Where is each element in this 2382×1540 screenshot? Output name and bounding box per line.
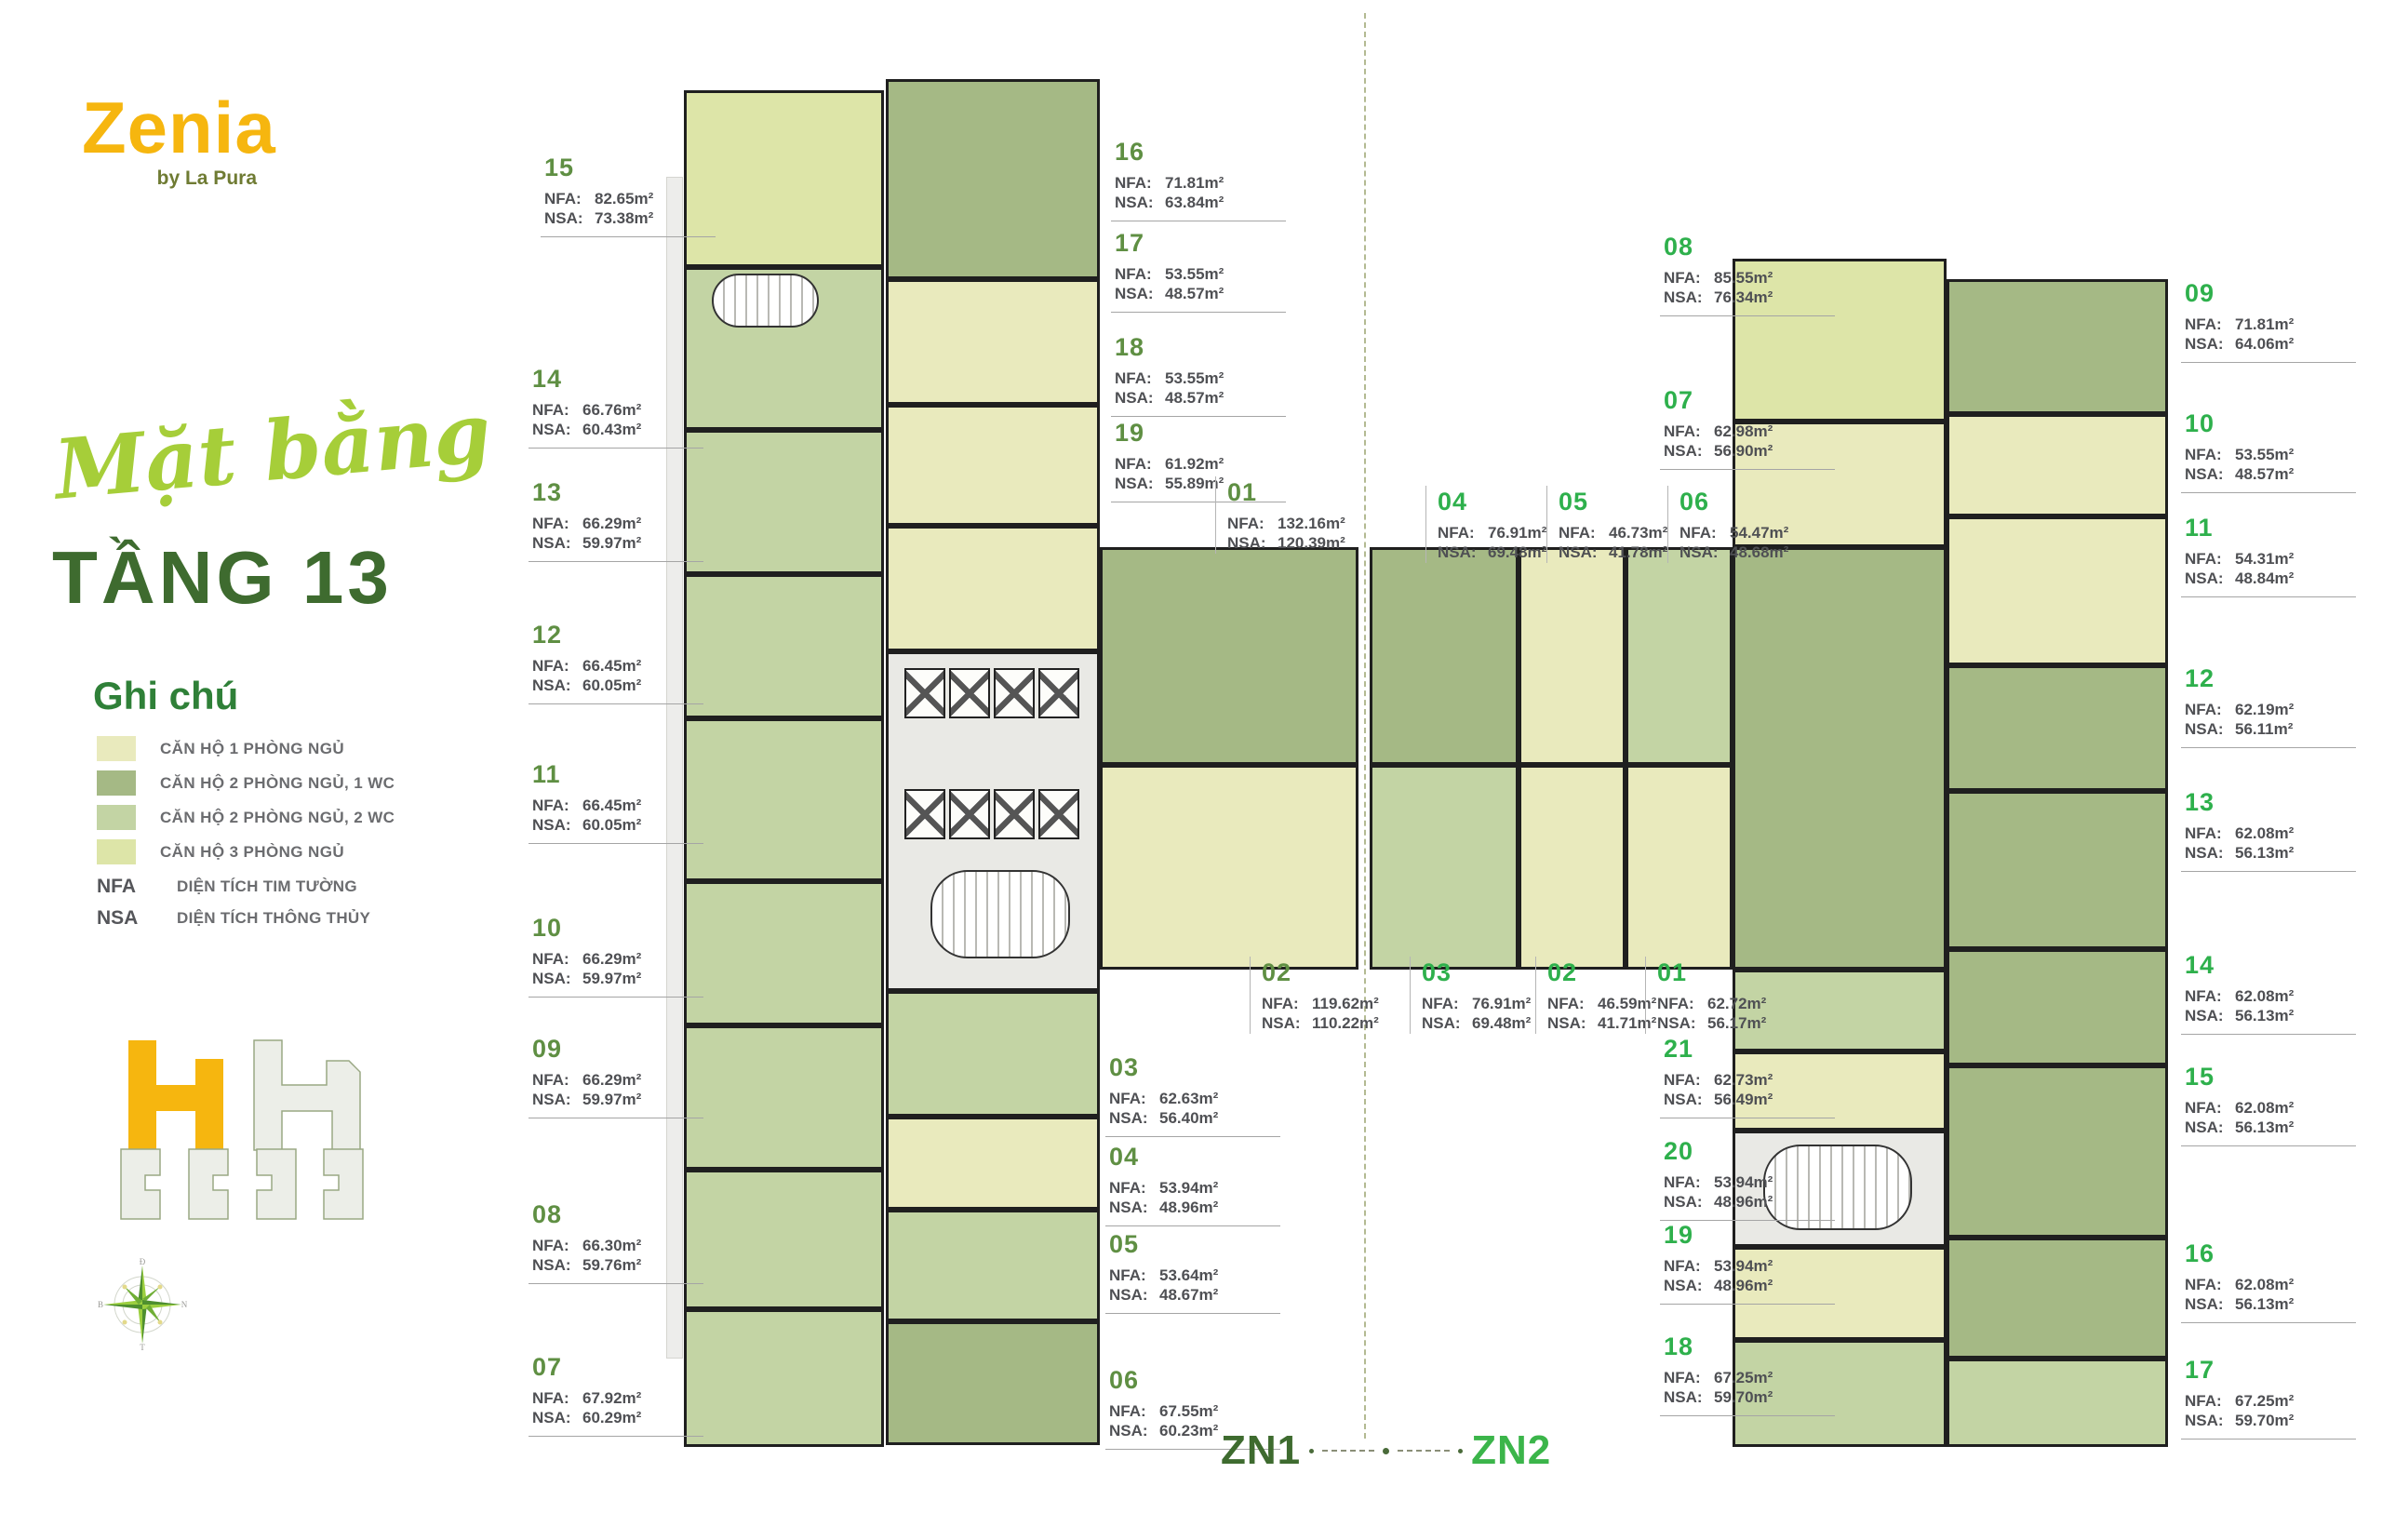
unit-number: 21 — [1664, 1033, 1840, 1065]
unit-nfa-key: NFA: — [1115, 173, 1165, 194]
unit-nfa-value: 54.31m² — [2235, 549, 2294, 569]
unit-nfa-row: NFA:53.55m² — [1115, 368, 1291, 389]
zn1-unit-02 — [1100, 765, 1358, 970]
unit-label-zn2-13: 13NFA:62.08m²NSA:56.13m² — [2185, 786, 2362, 864]
unit-nfa-key: NFA: — [1664, 422, 1714, 442]
unit-nsa-key: NSA: — [1109, 1285, 1159, 1306]
elevator-8 — [1038, 789, 1079, 839]
unit-nsa-value: 41.78m² — [1609, 542, 1667, 563]
unit-nsa-value: 60.23m² — [1159, 1421, 1218, 1441]
unit-nsa-key: NSA: — [2185, 1411, 2235, 1431]
unit-nsa-row: NSA:56.13m² — [2185, 1118, 2362, 1138]
unit-label-zn2-06: 06NFA:54.47m²NSA:48.68m² — [1667, 486, 1856, 563]
unit-nfa-value: 66.76m² — [582, 400, 641, 421]
unit-nsa-row: NSA:59.97m² — [532, 1090, 709, 1110]
unit-nfa-value: 82.65m² — [595, 189, 653, 209]
unit-nfa-value: 67.92m² — [582, 1388, 641, 1409]
unit-nsa-value: 48.67m² — [1159, 1285, 1218, 1306]
unit-label-zn1-16: 16NFA:71.81m²NSA:63.84m² — [1115, 136, 1291, 213]
minimap-block-2 — [189, 1149, 228, 1219]
unit-nsa-row: NSA:56.13m² — [2185, 1006, 2362, 1026]
unit-number: 10 — [2185, 408, 2362, 440]
brand-logo: Zenia — [82, 86, 276, 170]
elevator-5 — [904, 789, 945, 839]
unit-nfa-value: 53.55m² — [1165, 264, 1224, 285]
zn1-unit-09 — [684, 1025, 884, 1170]
zn1-unit-17 — [886, 279, 1100, 405]
legend-title: Ghi chú — [93, 674, 238, 718]
unit-nsa-row: NSA:59.97m² — [532, 533, 709, 554]
unit-nfa-row: NFA:67.55m² — [1109, 1401, 1286, 1422]
unit-nfa-key: NFA: — [2185, 1391, 2235, 1412]
unit-nsa-value: 48.68m² — [1730, 542, 1788, 563]
unit-label-zn2-12: 12NFA:62.19m²NSA:56.11m² — [2185, 663, 2362, 740]
zn2-unit-15 — [1947, 1065, 2168, 1238]
unit-number: 17 — [2185, 1354, 2362, 1386]
unit-nfa-value: 66.30m² — [582, 1236, 641, 1256]
unit-nfa-key: NFA: — [2185, 1098, 2235, 1118]
unit-nfa-row: NFA:53.55m² — [2185, 445, 2362, 465]
unit-number: 13 — [532, 476, 709, 509]
unit-nsa-value: 48.96m² — [1714, 1192, 1773, 1212]
compass-letter-bottom: T — [140, 1343, 145, 1351]
zn2-unit-10 — [1947, 414, 2168, 516]
unit-label-zn2-20: 20NFA:53.94m²NSA:48.96m² — [1664, 1135, 1840, 1212]
unit-nfa-key: NFA: — [2185, 315, 2235, 335]
unit-nsa-row: NSA:48.57m² — [1115, 388, 1291, 408]
unit-label-zn2-16: 16NFA:62.08m²NSA:56.13m² — [2185, 1238, 2362, 1315]
unit-label-zn1-15: 15NFA:82.65m²NSA:73.38m² — [544, 152, 721, 229]
zone-arrow-dot-center — [1383, 1448, 1389, 1454]
unit-nsa-row: NSA:120.39m² — [1227, 533, 1404, 554]
unit-nsa-value: 56.49m² — [1714, 1090, 1773, 1110]
zn1-unit-12 — [684, 574, 884, 718]
legend-note-NFA: NFADIỆN TÍCH TIM TƯỜNG — [97, 871, 370, 903]
unit-nsa-key: NSA: — [1664, 1090, 1714, 1110]
minimap-building-other-h — [254, 1040, 360, 1150]
unit-nsa-key: NSA: — [532, 420, 582, 440]
unit-nsa-value: 120.39m² — [1278, 533, 1345, 554]
unit-nfa-value: 62.19m² — [2235, 700, 2294, 720]
unit-nsa-value: 56.13m² — [2235, 1294, 2294, 1315]
unit-label-zn1-11: 11NFA:66.45m²NSA:60.05m² — [532, 758, 709, 836]
unit-label-zn2-19: 19NFA:53.94m²NSA:48.96m² — [1664, 1219, 1840, 1296]
unit-nfa-row: NFA:53.94m² — [1109, 1178, 1286, 1199]
unit-number: 06 — [1109, 1364, 1286, 1397]
unit-nfa-row: NFA:71.81m² — [2185, 315, 2362, 335]
zn2-unit-14 — [1947, 949, 2168, 1065]
unit-nsa-key: NSA: — [532, 1090, 582, 1110]
unit-nsa-key: NSA: — [1664, 288, 1714, 308]
unit-label-zn1-12: 12NFA:66.45m²NSA:60.05m² — [532, 619, 709, 696]
unit-nfa-row: NFA:66.45m² — [532, 656, 709, 676]
unit-nfa-value: 53.94m² — [1714, 1256, 1773, 1277]
unit-number: 16 — [1115, 136, 1291, 168]
unit-label-zn2-01: 01NFA:62.72m²NSA:56.17m² — [1645, 957, 1834, 1034]
zn1-unit-13 — [684, 430, 884, 574]
unit-label-zn1-10: 10NFA:66.29m²NSA:59.97m² — [532, 912, 709, 989]
unit-nfa-key: NFA: — [1657, 994, 1707, 1014]
unit-nsa-row: NSA:56.13m² — [2185, 1294, 2362, 1315]
zn1-unit-03 — [886, 991, 1100, 1117]
unit-nsa-row: NSA:56.49m² — [1664, 1090, 1840, 1110]
unit-label-zn2-15: 15NFA:62.08m²NSA:56.13m² — [2185, 1061, 2362, 1138]
unit-nsa-key: NSA: — [1657, 1013, 1707, 1034]
zn2-unit-02 — [1519, 765, 1626, 970]
unit-nsa-key: NSA: — [2185, 843, 2235, 864]
unit-nsa-row: NSA:60.29m² — [532, 1408, 709, 1428]
unit-nsa-row: NSA:48.57m² — [2185, 464, 2362, 485]
unit-nfa-row: NFA:62.63m² — [1109, 1089, 1286, 1109]
zone-arrow-dot-right — [1458, 1449, 1463, 1453]
compass-star — [103, 1265, 181, 1344]
unit-nsa-key: NSA: — [1664, 1192, 1714, 1212]
unit-number: 08 — [1664, 231, 1840, 263]
unit-nfa-row: NFA:67.92m² — [532, 1388, 709, 1409]
unit-nfa-key: NFA: — [1438, 523, 1488, 543]
unit-nsa-row: NSA:56.13m² — [2185, 843, 2362, 864]
unit-number: 12 — [532, 619, 709, 651]
compass-letter-left: B — [98, 1300, 103, 1309]
unit-number: 15 — [544, 152, 721, 184]
unit-nsa-row: NSA:63.84m² — [1115, 193, 1291, 213]
elevator-4 — [1038, 668, 1079, 718]
unit-nsa-value: 60.05m² — [582, 676, 641, 696]
legend-note-key-NFA: NFA — [97, 876, 177, 898]
unit-nfa-value: 66.29m² — [582, 949, 641, 970]
unit-nsa-key: NSA: — [532, 533, 582, 554]
unit-nfa-row: NFA:54.31m² — [2185, 549, 2362, 569]
unit-number: 18 — [1664, 1331, 1840, 1363]
zn1-unit-05 — [886, 1210, 1100, 1321]
legend-swatch-0 — [97, 736, 136, 761]
unit-label-zn2-07: 07NFA:62.98m²NSA:56.90m² — [1664, 384, 1840, 462]
unit-label-zn2-10: 10NFA:53.55m²NSA:48.57m² — [2185, 408, 2362, 485]
unit-nsa-value: 56.17m² — [1707, 1013, 1766, 1034]
zn1-unit-16 — [886, 79, 1100, 279]
unit-nsa-value: 48.57m² — [1165, 388, 1224, 408]
unit-nsa-row: NSA:56.11m² — [2185, 719, 2362, 740]
site-minimap — [110, 1024, 389, 1238]
floorplan-canvas: Zenia by La Pura Mặt bằng TẦNG 13 Ghi ch… — [0, 0, 2382, 1540]
unit-nfa-row: NFA:61.92m² — [1115, 454, 1291, 475]
legend: CĂN HỘ 1 PHÒNG NGỦCĂN HỘ 2 PHÒNG NGỦ, 1 … — [97, 731, 395, 869]
zn2-mid-left — [1733, 547, 1947, 970]
unit-nfa-key: NFA: — [1679, 523, 1730, 543]
unit-nsa-key: NSA: — [1438, 542, 1488, 563]
zn2-unit-06 — [1626, 547, 1733, 765]
unit-nsa-key: NSA: — [1109, 1108, 1159, 1129]
unit-nfa-value: 66.45m² — [582, 656, 641, 676]
unit-nfa-key: NFA: — [1547, 994, 1598, 1014]
unit-nfa-value: 54.47m² — [1730, 523, 1788, 543]
unit-number: 15 — [2185, 1061, 2362, 1093]
minimap-block-1 — [121, 1149, 160, 1219]
minimap-building-current — [128, 1040, 223, 1152]
brand-logo-sub: by La Pura — [80, 167, 257, 190]
unit-number: 11 — [2185, 512, 2362, 544]
unit-nfa-row: NFA:82.65m² — [544, 189, 721, 209]
unit-nfa-key: NFA: — [2185, 824, 2235, 844]
unit-nsa-key: NSA: — [2185, 1118, 2235, 1138]
unit-label-zn2-17: 17NFA:67.25m²NSA:59.70m² — [2185, 1354, 2362, 1431]
unit-number: 12 — [2185, 663, 2362, 695]
unit-label-zn2-14: 14NFA:62.08m²NSA:56.13m² — [2185, 949, 2362, 1026]
unit-nsa-key: NSA: — [2185, 334, 2235, 355]
unit-nfa-row: NFA:85.55m² — [1664, 268, 1840, 288]
unit-nfa-key: NFA: — [2185, 700, 2235, 720]
unit-label-zn2-08: 08NFA:85.55m²NSA:76.34m² — [1664, 231, 1840, 308]
unit-nfa-value: 66.29m² — [582, 1070, 641, 1091]
unit-nsa-value: 48.96m² — [1714, 1276, 1773, 1296]
unit-nfa-key: NFA: — [1115, 454, 1165, 475]
zn2-unit-01 — [1626, 765, 1733, 970]
unit-number: 05 — [1109, 1228, 1286, 1261]
unit-nfa-row: NFA:53.55m² — [1115, 264, 1291, 285]
zn1-top-stair — [712, 274, 819, 328]
unit-nfa-value: 62.08m² — [2235, 1098, 2294, 1118]
legend-item-0: CĂN HỘ 1 PHÒNG NGỦ — [97, 731, 395, 766]
unit-nfa-row: NFA:66.45m² — [532, 796, 709, 816]
unit-nsa-row: NSA:56.90m² — [1664, 441, 1840, 462]
unit-nsa-key: NSA: — [1109, 1421, 1159, 1441]
unit-nsa-key: NSA: — [1559, 542, 1609, 563]
unit-nfa-value: 53.55m² — [2235, 445, 2294, 465]
unit-nfa-key: NFA: — [2185, 549, 2235, 569]
unit-nsa-value: 56.13m² — [2235, 1118, 2294, 1138]
unit-number: 16 — [2185, 1238, 2362, 1270]
unit-number: 08 — [532, 1199, 709, 1231]
unit-nfa-key: NFA: — [1422, 994, 1472, 1014]
unit-nfa-row: NFA:53.94m² — [1664, 1172, 1840, 1193]
unit-nfa-row: NFA:66.29m² — [532, 1070, 709, 1091]
legend-note-NSA: NSADIỆN TÍCH THÔNG THỦY — [97, 903, 370, 934]
unit-nfa-key: NFA: — [1262, 994, 1312, 1014]
zn1-unit-06 — [886, 1321, 1100, 1445]
unit-nfa-row: NFA:62.08m² — [2185, 1098, 2362, 1118]
unit-number: 20 — [1664, 1135, 1840, 1168]
unit-nfa-key: NFA: — [532, 656, 582, 676]
unit-nfa-row: NFA:66.76m² — [532, 400, 709, 421]
unit-nsa-value: 59.70m² — [1714, 1387, 1773, 1408]
unit-nfa-key: NFA: — [1109, 1265, 1159, 1286]
unit-nfa-key: NFA: — [1227, 514, 1278, 534]
unit-label-zn1-09: 09NFA:66.29m²NSA:59.97m² — [532, 1033, 709, 1110]
elevator-6 — [949, 789, 990, 839]
zone-zn2-label: ZN2 — [1471, 1427, 1551, 1474]
unit-label-zn2-21: 21NFA:62.73m²NSA:56.49m² — [1664, 1033, 1840, 1110]
unit-number: 11 — [532, 758, 709, 791]
unit-nsa-row: NSA:60.43m² — [532, 420, 709, 440]
unit-nsa-row: NSA:59.70m² — [2185, 1411, 2362, 1431]
unit-nfa-value: 71.81m² — [2235, 315, 2294, 335]
unit-nfa-key: NFA: — [2185, 986, 2235, 1007]
zone-arrow-dash-right — [1398, 1450, 1450, 1452]
unit-nsa-value: 60.05m² — [582, 815, 641, 836]
zn1-unit-19 — [886, 526, 1100, 651]
unit-nfa-value: 62.63m² — [1159, 1089, 1218, 1109]
unit-nsa-row: NSA:60.05m² — [532, 815, 709, 836]
legend-item-3: CĂN HỘ 3 PHÒNG NGỦ — [97, 835, 395, 869]
unit-nfa-row: NFA:66.29m² — [532, 949, 709, 970]
zn1-unit-11 — [684, 718, 884, 881]
elevator-3 — [994, 668, 1035, 718]
unit-nsa-key: NSA: — [1227, 533, 1278, 554]
legend-item-2: CĂN HỘ 2 PHÒNG NGỦ, 2 WC — [97, 800, 395, 835]
unit-nsa-key: NSA: — [1422, 1013, 1472, 1034]
unit-nfa-row: NFA:62.08m² — [2185, 986, 2362, 1007]
legend-swatch-1 — [97, 770, 136, 796]
unit-nsa-key: NSA: — [1262, 1013, 1312, 1034]
unit-nfa-key: NFA: — [1115, 264, 1165, 285]
unit-nsa-row: NSA:48.96m² — [1109, 1198, 1286, 1218]
unit-nfa-key: NFA: — [532, 949, 582, 970]
unit-nsa-key: NSA: — [2185, 1006, 2235, 1026]
legend-label-0: CĂN HỘ 1 PHÒNG NGỦ — [160, 740, 344, 758]
unit-nfa-key: NFA: — [2185, 445, 2235, 465]
unit-nsa-key: NSA: — [532, 1408, 582, 1428]
unit-nsa-value: 56.11m² — [2235, 719, 2293, 740]
zn1-unit-07 — [684, 1309, 884, 1447]
unit-nfa-row: NFA:54.47m² — [1679, 523, 1856, 543]
zn2-unit-16 — [1947, 1238, 2168, 1359]
unit-nfa-value: 62.08m² — [2235, 824, 2294, 844]
unit-nsa-value: 60.43m² — [582, 420, 641, 440]
unit-nsa-value: 64.06m² — [2235, 334, 2294, 355]
unit-number: 09 — [2185, 277, 2362, 310]
unit-nfa-value: 66.29m² — [582, 514, 641, 534]
unit-nsa-value: 56.40m² — [1159, 1108, 1218, 1129]
unit-nfa-key: NFA: — [532, 1236, 582, 1256]
unit-number: 04 — [1109, 1141, 1286, 1173]
unit-number: 06 — [1679, 486, 1856, 518]
unit-nsa-row: NSA:48.96m² — [1664, 1276, 1840, 1296]
unit-nsa-row: NSA:59.97m² — [532, 969, 709, 989]
unit-nsa-value: 59.97m² — [582, 969, 641, 989]
unit-nsa-row: NSA:59.70m² — [1664, 1387, 1840, 1408]
unit-nfa-row: NFA:53.94m² — [1664, 1256, 1840, 1277]
unit-nsa-value: 63.84m² — [1165, 193, 1224, 213]
unit-nfa-row: NFA:62.08m² — [2185, 824, 2362, 844]
unit-nsa-value: 59.76m² — [582, 1255, 641, 1276]
unit-nfa-row: NFA:71.81m² — [1115, 173, 1291, 194]
unit-nfa-key: NFA: — [532, 1388, 582, 1409]
unit-nsa-row: NSA:73.38m² — [544, 208, 721, 229]
unit-nfa-row: NFA:62.72m² — [1657, 994, 1834, 1014]
legend-notes: NFADIỆN TÍCH TIM TƯỜNGNSADIỆN TÍCH THÔNG… — [97, 871, 370, 934]
unit-nsa-row: NSA:56.40m² — [1109, 1108, 1286, 1129]
unit-nfa-key: NFA: — [1664, 1256, 1714, 1277]
unit-nsa-row: NSA:76.34m² — [1664, 288, 1840, 308]
unit-number: 09 — [532, 1033, 709, 1065]
unit-nsa-value: 56.90m² — [1714, 441, 1773, 462]
unit-nfa-row: NFA:62.08m² — [2185, 1275, 2362, 1295]
unit-nfa-key: NFA: — [532, 400, 582, 421]
unit-nfa-value: 67.25m² — [2235, 1391, 2294, 1412]
unit-nsa-key: NSA: — [1115, 284, 1165, 304]
unit-number: 13 — [2185, 786, 2362, 819]
unit-nsa-value: 59.97m² — [582, 1090, 641, 1110]
unit-nsa-row: NSA:59.76m² — [532, 1255, 709, 1276]
unit-nsa-value: 69.48m² — [1472, 1013, 1531, 1034]
unit-nsa-key: NSA: — [532, 969, 582, 989]
zn1-unit-18 — [886, 405, 1100, 526]
unit-nfa-row: NFA:62.73m² — [1664, 1070, 1840, 1091]
unit-nsa-value: 59.97m² — [582, 533, 641, 554]
unit-nsa-row: NSA:48.67m² — [1109, 1285, 1286, 1306]
zone-indicator: ZN1 ZN2 — [1221, 1427, 1551, 1474]
zn2-unit-17 — [1947, 1359, 2168, 1447]
zone-zn1-label: ZN1 — [1221, 1427, 1301, 1474]
unit-nsa-key: NSA: — [2185, 464, 2235, 485]
unit-number: 10 — [532, 912, 709, 944]
unit-number: 18 — [1115, 331, 1291, 364]
legend-label-2: CĂN HỘ 2 PHÒNG NGỦ, 2 WC — [160, 809, 395, 827]
elevator-1 — [904, 668, 945, 718]
unit-nfa-value: 62.08m² — [2235, 986, 2294, 1007]
legend-item-1: CĂN HỘ 2 PHÒNG NGỦ, 1 WC — [97, 766, 395, 800]
unit-nsa-key: NSA: — [1115, 193, 1165, 213]
unit-nsa-value: 48.84m² — [2235, 569, 2294, 589]
unit-nsa-value: 56.13m² — [2235, 1006, 2294, 1026]
compass-letter-top: Đ — [140, 1258, 146, 1266]
unit-nfa-value: 132.16m² — [1278, 514, 1345, 534]
zone-arrow-dash-left — [1322, 1450, 1374, 1452]
unit-nsa-row: NSA:48.68m² — [1679, 542, 1856, 563]
unit-nfa-row: NFA:132.16m² — [1227, 514, 1404, 534]
zn2-unit-04 — [1370, 547, 1519, 765]
zone-divider-line — [1364, 13, 1366, 1439]
unit-nsa-value: 56.13m² — [2235, 843, 2294, 864]
unit-nsa-key: NSA: — [1664, 441, 1714, 462]
unit-nsa-key: NSA: — [1679, 542, 1730, 563]
unit-nsa-key: NSA: — [544, 208, 595, 229]
zn2-unit-13 — [1947, 791, 2168, 949]
unit-nfa-row: NFA:66.30m² — [532, 1236, 709, 1256]
unit-nsa-key: NSA: — [532, 1255, 582, 1276]
unit-nfa-value: 61.92m² — [1165, 454, 1224, 475]
unit-nsa-key: NSA: — [532, 676, 582, 696]
unit-nfa-value: 67.25m² — [1714, 1368, 1773, 1388]
unit-nfa-key: NFA: — [544, 189, 595, 209]
unit-nfa-key: NFA: — [1559, 523, 1609, 543]
unit-nfa-key: NFA: — [1109, 1401, 1159, 1422]
unit-nsa-row: NSA:56.17m² — [1657, 1013, 1834, 1034]
unit-nfa-value: 62.08m² — [2235, 1275, 2294, 1295]
unit-nfa-key: NFA: — [1664, 1172, 1714, 1193]
unit-label-zn1-03: 03NFA:62.63m²NSA:56.40m² — [1109, 1051, 1286, 1129]
elevator-7 — [994, 789, 1035, 839]
unit-nsa-row: NSA:60.05m² — [532, 676, 709, 696]
unit-nfa-key: NFA: — [1109, 1089, 1159, 1109]
unit-nfa-row: NFA:62.19m² — [2185, 700, 2362, 720]
unit-nfa-value: 85.55m² — [1714, 268, 1773, 288]
unit-nsa-value: 48.96m² — [1159, 1198, 1218, 1218]
unit-label-zn1-01: 01NFA:132.16m²NSA:120.39m² — [1215, 476, 1404, 554]
unit-nfa-value: 62.72m² — [1707, 994, 1766, 1014]
unit-label-zn1-07: 07NFA:67.92m²NSA:60.29m² — [532, 1351, 709, 1428]
unit-number: 17 — [1115, 227, 1291, 260]
compass-letter-right: N — [181, 1300, 188, 1309]
unit-nfa-value: 62.73m² — [1714, 1070, 1773, 1091]
unit-label-zn1-13: 13NFA:66.29m²NSA:59.97m² — [532, 476, 709, 554]
unit-number: 07 — [1664, 384, 1840, 417]
unit-nfa-value: 53.64m² — [1159, 1265, 1218, 1286]
legend-label-3: CĂN HỘ 3 PHÒNG NGỦ — [160, 843, 344, 862]
unit-nsa-key: NSA: — [1664, 1276, 1714, 1296]
legend-swatch-2 — [97, 805, 136, 830]
unit-nfa-key: NFA: — [1115, 368, 1165, 389]
